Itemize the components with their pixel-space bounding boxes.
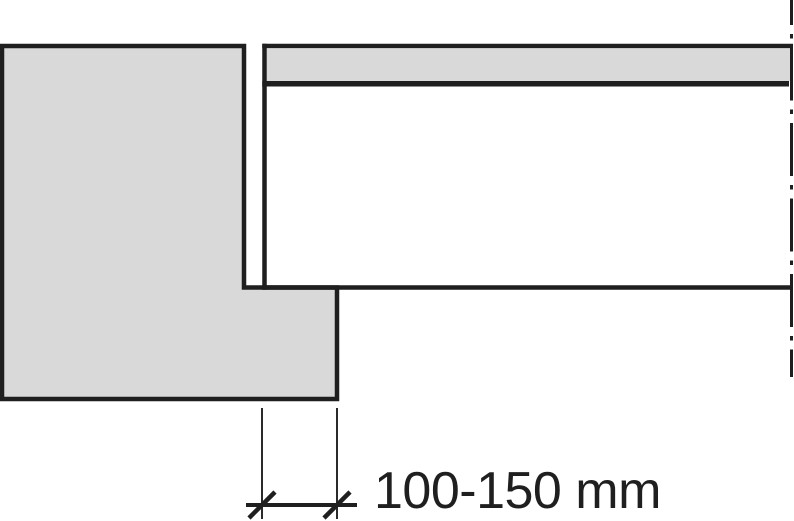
dimension-label: 100-150 mm [374, 462, 661, 520]
wall-section [2, 46, 337, 399]
section-detail-drawing: 100-150 mm [0, 0, 794, 521]
screed-band [267, 48, 791, 81]
detail-drawing-canvas: 100-150 mm [0, 0, 794, 521]
